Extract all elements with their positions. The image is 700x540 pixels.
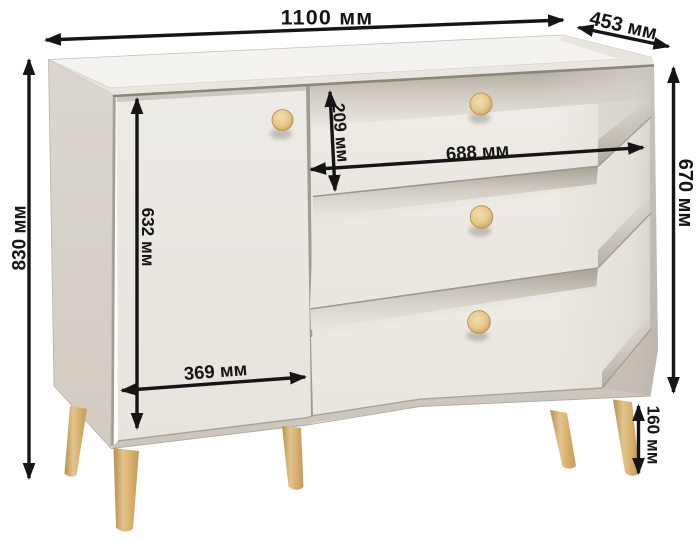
svg-text:670 мм: 670 мм: [674, 159, 696, 228]
svg-text:632 мм: 632 мм: [138, 208, 158, 267]
svg-text:830 мм: 830 мм: [10, 205, 31, 270]
svg-text:160 мм: 160 мм: [644, 406, 664, 465]
svg-text:1100 мм: 1100 мм: [281, 6, 374, 30]
svg-text:688 мм: 688 мм: [445, 139, 510, 164]
